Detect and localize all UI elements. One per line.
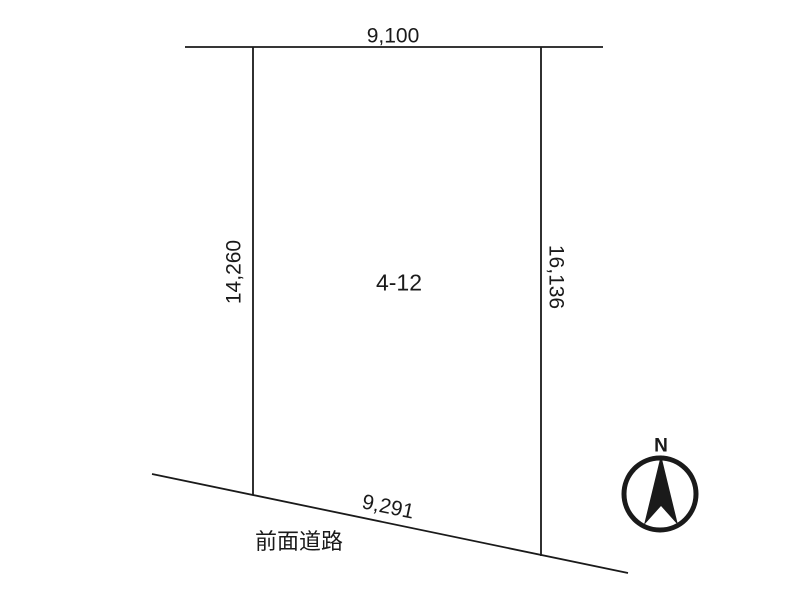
north-arrow-icon xyxy=(644,455,678,525)
road-boundary-line xyxy=(152,474,628,573)
road-name-label: 前面道路 xyxy=(255,531,343,553)
lot-number-label: 4-12 xyxy=(376,272,422,295)
compass-north-label: N xyxy=(654,437,668,456)
dimension-label-left: 14,260 xyxy=(224,240,245,304)
land-plot-diagram: 9,100 14,260 16,136 9,291 4-12 前面道路 N xyxy=(0,0,800,600)
dimension-label-right: 16,136 xyxy=(546,245,567,309)
dimension-label-top: 9,100 xyxy=(367,26,420,47)
